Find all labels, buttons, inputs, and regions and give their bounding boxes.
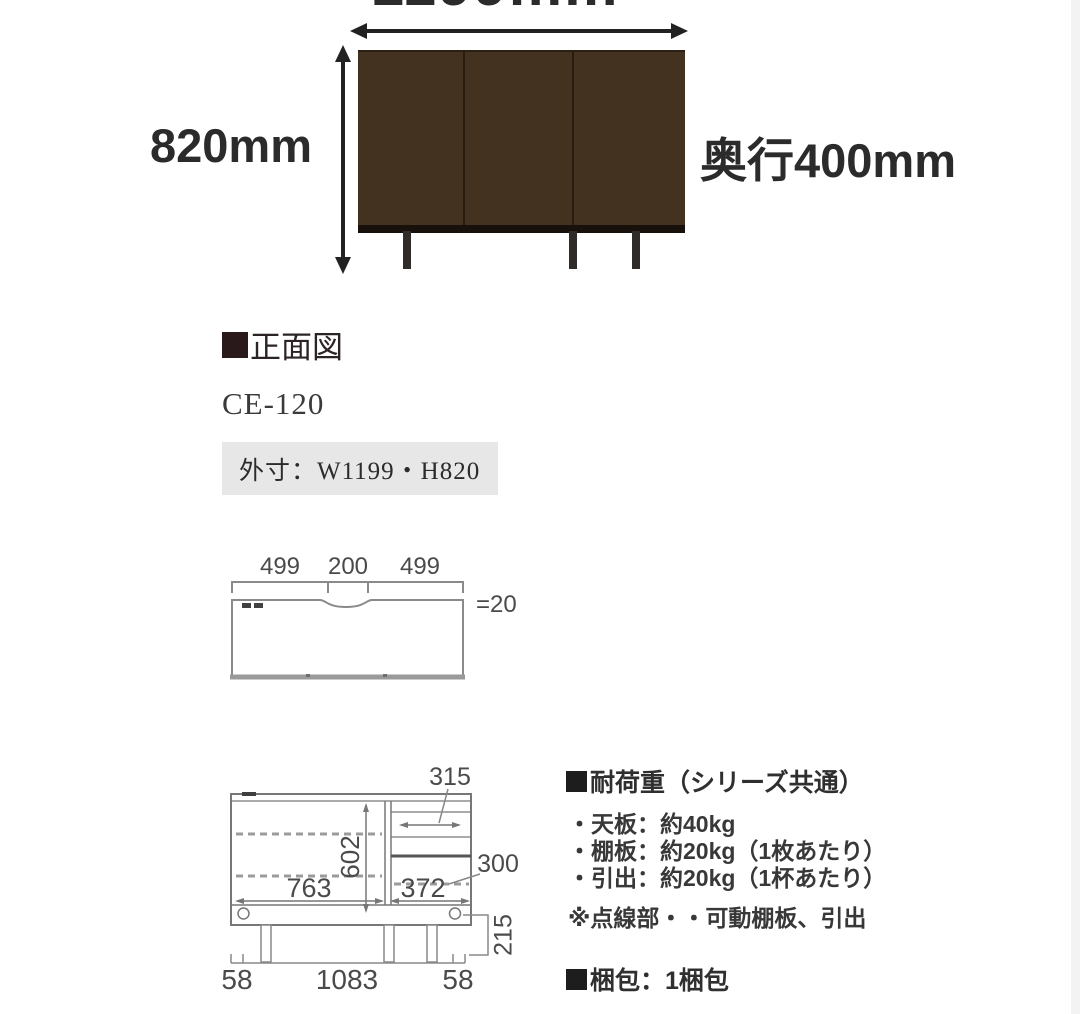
leg-outline: [384, 925, 394, 962]
front-view-drawing: 602 763 315 300 372 58 1083 58: [220, 755, 540, 1010]
top-edge-mark: [242, 792, 256, 796]
outer-dimensions-box: 外寸：W1199・H820: [222, 442, 498, 495]
frontview-dim-left-width: 763: [286, 873, 331, 903]
frontview-dim-shelf: 300: [477, 850, 519, 878]
door-seam: [572, 52, 574, 225]
adjuster-circle: [238, 908, 249, 919]
top-view-drawing: 499 200 499 =20: [220, 548, 540, 688]
width-arrow-icon: [350, 23, 688, 39]
product-photo-cabinet: [358, 50, 685, 233]
frontview-dim-base-width: 1083: [316, 964, 378, 995]
model-number: CE-120: [222, 386, 324, 422]
outer-dimensions-label: 外寸：W1199・H820: [239, 451, 480, 487]
topview-dim-left: 499: [260, 553, 300, 580]
packing-info: 梱包：1梱包: [566, 961, 729, 997]
topview-dim-bracket: [232, 582, 463, 593]
height-arrow-icon: [335, 45, 351, 274]
hinge-mark: [242, 603, 251, 608]
cabinet-leg: [403, 231, 411, 269]
heading-marker-icon: [566, 771, 587, 792]
frontview-dim-left-offset: 58: [221, 964, 252, 995]
topview-dim-right: 499: [400, 553, 440, 580]
frontview-dim-inner-height: 602: [335, 835, 365, 878]
section-marker-icon: [222, 332, 248, 358]
load-capacity-title: 耐荷重（シリーズ共通）: [590, 763, 864, 799]
spec-sheet: 1199mm 820mm 奥行400mm 正面図 CE-120 外寸：W1199…: [0, 0, 1080, 1014]
frontview-dim-right-offset: 58: [442, 964, 473, 995]
edge-dot: [306, 674, 310, 677]
dashed-line-note: ※点線部・・可動棚板、引出: [568, 899, 866, 933]
frontview-dim-drawer-width: 315: [429, 763, 471, 791]
edge-dot: [383, 674, 387, 677]
topview-thickness-label: =20: [476, 591, 517, 618]
load-capacity-heading: 耐荷重（シリーズ共通）: [566, 763, 864, 799]
frontview-dim-right-width: 372: [400, 873, 445, 903]
cabinet-leg: [632, 231, 640, 269]
topview-outline: [232, 600, 463, 677]
hinge-mark: [254, 603, 263, 608]
leg-outline: [261, 925, 271, 962]
packing-label: 梱包：1梱包: [590, 961, 729, 997]
leg-outline: [427, 925, 437, 962]
section-title: 正面図: [222, 322, 343, 367]
cabinet-leg: [569, 231, 577, 269]
door-seam: [463, 52, 465, 225]
heading-marker-icon: [566, 969, 587, 990]
section-title-label: 正面図: [250, 322, 343, 367]
adjuster-circle: [450, 908, 461, 919]
load-item-drawer: ・引出：約20kg（1杯あたり）: [568, 859, 886, 893]
frontview-dim-leg-height: 215: [490, 914, 518, 956]
topview-dim-center: 200: [328, 553, 368, 580]
